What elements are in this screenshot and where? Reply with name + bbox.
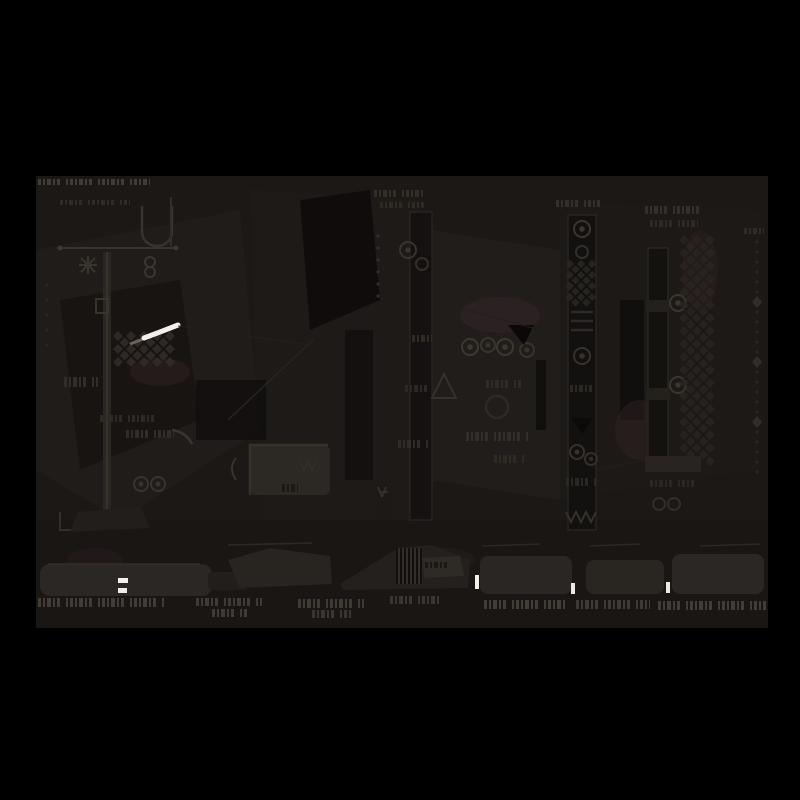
rosette-l1-center (139, 482, 144, 487)
e-glyphs-1-dash (495, 380, 499, 388)
colD-top-cluster-dash (389, 190, 391, 197)
header-textrow-dash (57, 179, 60, 185)
header-textrow-dash (149, 179, 150, 185)
caption-2a-dash (196, 598, 199, 606)
colG-top-cluster2-dash (655, 220, 657, 227)
slab-3b (422, 556, 464, 578)
ppp-row-dash (92, 377, 94, 387)
white-tick-2 (571, 583, 575, 594)
caption-4-dash (499, 600, 501, 609)
rosette-c1-center (467, 344, 473, 350)
slab-6 (672, 554, 764, 594)
equals-mark-top (118, 578, 128, 583)
colG-band1 (646, 300, 670, 312)
caption-2a-dash (243, 598, 245, 606)
top-ticks-dash (88, 200, 90, 205)
colG-glyphs-bottom-dash (682, 480, 685, 487)
glyph-cluster-left-dash (167, 430, 171, 438)
glyph-cluster-left2-dash (147, 415, 149, 422)
caption-3b-dash (331, 610, 334, 618)
right-dotline-dot (755, 340, 758, 343)
colD-glyphs-mid-dash (417, 335, 419, 342)
g-glyph-bottom-dash (282, 484, 285, 492)
caption-3c-dash (422, 596, 425, 604)
caption-1-dash (85, 598, 87, 607)
colD-top-cluster2-dash (395, 202, 397, 208)
caption-3a-dash (349, 599, 352, 608)
colG-body (648, 248, 668, 468)
header-textrow-dash (117, 179, 119, 185)
e-glyphs-1-dash (518, 380, 521, 388)
colD-left-ticks-dot (376, 246, 379, 249)
caption-3c-dash (405, 596, 407, 604)
colG-top-cluster-dash (650, 206, 652, 214)
top-ticks-dash (69, 200, 73, 205)
caption-1-dash (79, 598, 83, 607)
white-tick-1 (475, 575, 479, 589)
left-margin-dots-dot (45, 343, 48, 346)
caption-3c-dash (437, 596, 439, 604)
e-dark-bar (536, 360, 546, 430)
header-textrow-dash (53, 179, 55, 185)
e-glyphs-1-dash (491, 380, 493, 388)
glyph-cluster-left-dash (131, 430, 133, 438)
slab-3b-marks-dash (440, 562, 442, 568)
header-textrow-dash (43, 179, 45, 185)
caption-2a-dash (201, 598, 203, 606)
caption-6-dash (718, 601, 720, 610)
header-textrow-dash (98, 179, 100, 185)
caption-6-dash (763, 601, 766, 610)
colF-glyphs2-dash (575, 478, 579, 486)
caption-1-dash (57, 598, 60, 607)
left-margin-dots-dot (45, 313, 48, 316)
colD-top-cluster2-dash (399, 202, 402, 208)
header-textrow-dash (70, 179, 73, 185)
caption-2b-dash (244, 609, 247, 617)
right-dotline-dot (755, 320, 758, 323)
caption-6-dash (722, 601, 725, 610)
caption-6-dash (737, 601, 739, 610)
glyph-cluster-left-dash (141, 430, 143, 438)
colD-top-cluster2-dash (408, 202, 410, 208)
colD-top-cluster-dash (411, 190, 413, 197)
right-glyph-top-dash (763, 228, 764, 234)
glyph-cluster-left2-dash (141, 415, 145, 422)
glyph-cluster-left-dash (145, 430, 148, 438)
header-textrow-dash (121, 179, 124, 185)
colG-glyphs-bottom-dash (665, 480, 667, 487)
caption-3a-dash (330, 599, 333, 608)
glyph-cluster-left2-dash (100, 415, 103, 422)
right-dotline-dot (755, 240, 758, 243)
colG-glyphs-bottom-dash (678, 480, 680, 487)
caption-4-dash (525, 600, 529, 609)
colG-top-cluster-dash (686, 206, 690, 214)
right-dotline-dot (755, 250, 758, 253)
caption-4-dash (493, 600, 497, 609)
colG-top-cluster2-dash (650, 220, 653, 227)
e-glyphs-2-dash (517, 432, 520, 441)
colD-glyphs-low-dash (398, 440, 401, 448)
top-ticks-dash (65, 200, 67, 205)
colF-glyphs-dash (579, 385, 583, 392)
right-glyph-top-dash (753, 228, 757, 234)
header-textrow-dash (134, 179, 137, 185)
caption-6-dash (673, 601, 675, 610)
top-ticks-dash (60, 200, 63, 205)
caption-3a-dash (339, 599, 343, 608)
caption-6-dash (731, 601, 735, 610)
dim-dot-left (58, 246, 63, 251)
colD-top-cluster2-dash (417, 202, 419, 208)
top-ticks-dash (101, 200, 105, 205)
caption-6-dash (759, 601, 761, 610)
left-margin-dots-dot (45, 298, 48, 301)
e-glyphs-2-dash (485, 432, 488, 441)
colG-top-cluster2-dash (659, 220, 663, 227)
colF-glyphs2-dash (571, 478, 573, 486)
right-dotline-dot (755, 410, 758, 413)
top-ticks-dash (92, 200, 95, 205)
slab-5 (586, 560, 664, 594)
right-dotline-dot (755, 450, 758, 453)
colD-top-cluster-dash (379, 190, 381, 197)
star-glyph (79, 256, 97, 274)
colF-top-cluster-dash (571, 200, 573, 207)
colD-top-cluster2-dash (412, 202, 415, 208)
slab-3b-marks-dash (444, 562, 447, 568)
top-ticks-dash (111, 200, 114, 205)
colD-top-cluster2-dash (389, 202, 393, 208)
g-glyph-bottom-dash (297, 484, 298, 492)
right-dotline-dot (755, 470, 758, 473)
caption-3c-dash (427, 596, 429, 604)
caption-4-dash (531, 600, 533, 609)
caption-6-dash (754, 601, 757, 610)
caption-4-dash (503, 600, 506, 609)
caption-3b-dash (349, 610, 351, 618)
right-dotline-dot (755, 350, 758, 353)
caption-4-dash (563, 600, 565, 609)
colG-band2 (646, 388, 670, 400)
e-glyphs-2-dash (503, 432, 505, 441)
colF-top-cluster-dash (565, 200, 569, 207)
rosette-c3-center (502, 344, 508, 350)
header-textrow-dash (139, 179, 141, 185)
dim-dot-right (174, 246, 179, 251)
colD-top-cluster-dash (374, 190, 377, 197)
right-dotline-dot (755, 260, 758, 263)
e-glyphs-3-dash (522, 455, 524, 463)
caption-1-dash (53, 598, 55, 607)
screenshot-root (0, 0, 800, 800)
caption-4-dash (484, 600, 487, 609)
caption-6-dash (741, 601, 744, 610)
caption-4-dash (535, 600, 538, 609)
colD-top-cluster-dash (393, 190, 396, 197)
colG-slab (645, 456, 701, 472)
top-ticks-dash (107, 200, 109, 205)
caption-3c-dash (399, 596, 403, 604)
colG-top-cluster-dash (692, 206, 694, 214)
header-textrow-dash (111, 179, 115, 185)
caption-3a-dash (303, 599, 305, 608)
colF-rosette-mid-center (579, 353, 585, 359)
caption-3b-dash (327, 610, 329, 618)
header-textrow-dash (107, 179, 109, 185)
left-margin-dots-dot (45, 283, 48, 286)
ppp-row-dash (79, 377, 81, 387)
glyph-cluster-left-dash (158, 430, 161, 438)
colF-rosette3-center (589, 457, 593, 461)
glyph-cluster-left2-dash (128, 415, 130, 422)
header-textrow-dash (85, 179, 87, 185)
e-glyphs-3-dash (499, 455, 501, 463)
top-ticks-dash (79, 200, 82, 205)
colD-foot (377, 480, 393, 518)
colD-left-ticks-dot (376, 282, 379, 285)
colD-ring1-center (405, 247, 411, 253)
colD-glyphs-mid2-dash (405, 385, 408, 392)
e-glyphs-2-dash (481, 432, 483, 441)
colF-top-cluster-dash (575, 200, 578, 207)
colD-top-cluster-dash (415, 190, 419, 197)
e-glyphs-1-dash (514, 380, 516, 388)
colD-glyphs-mid-dash (412, 335, 415, 342)
caption-4-dash (548, 600, 551, 609)
caption-3b-dash (312, 610, 315, 618)
glyph-cluster-left-dash (135, 430, 139, 438)
right-dotline-dot (755, 290, 758, 293)
glyph-cluster-left-dash (154, 430, 156, 438)
colF-glyphs2-dash (566, 478, 569, 486)
rosette-c4-center (525, 348, 530, 353)
e-glyphs-2-dash (494, 432, 496, 441)
colD-top-cluster-dash (383, 190, 387, 197)
caption-5-dash (627, 600, 630, 609)
colF-glyphs2-dash (581, 478, 583, 486)
caption-1-dash (139, 598, 141, 607)
caption-2a-dash (256, 598, 258, 606)
glyph-cluster-left-dash (163, 430, 165, 438)
caption-1-dash (38, 598, 41, 607)
caption-4-dash (544, 600, 546, 609)
caption-1-dash (130, 598, 132, 607)
caption-3a-dash (313, 599, 315, 608)
colD-glyphs-mid2-dash (424, 385, 427, 392)
caption-1-dash (102, 598, 105, 607)
caption-1-dash (70, 598, 73, 607)
glyph-cluster-left2-dash (137, 415, 139, 422)
caption-6-dash (695, 601, 697, 610)
e-glyphs-2-dash (498, 432, 501, 441)
caption-3c-dash (431, 596, 435, 604)
colG-top-cluster-dash (654, 206, 658, 214)
colD-top-cluster2-dash (385, 202, 387, 208)
caption-1-dash (143, 598, 147, 607)
caption-1-dash (47, 598, 51, 607)
caption-3c-dash (418, 596, 420, 604)
caption-6-dash (709, 601, 712, 610)
colG-top-cluster-dash (664, 206, 667, 214)
header-textrow-dash (47, 179, 51, 185)
colG-glyphs-bottom-dash (691, 480, 694, 487)
caption-3c-dash (409, 596, 412, 604)
caption-3a-dash (326, 599, 328, 608)
top-ticks-dash (120, 200, 122, 205)
slab-3b-marks-dash (434, 562, 438, 568)
colG-top-cluster2-dash (697, 220, 698, 227)
colG-glyphs-bottom-dash (650, 480, 653, 487)
e-glyphs-3-dash (494, 455, 497, 463)
caption-5-dash (576, 600, 579, 609)
slab-3b-marks-dash (430, 562, 432, 568)
colD-glyphs-low-dash (417, 440, 420, 448)
caption-2b-dash (231, 609, 234, 617)
caption-2a-dash (224, 598, 226, 606)
caption-5-dash (636, 600, 638, 609)
g-glyph-bottom-dash (291, 484, 295, 492)
colF-top-cluster-dash (556, 200, 559, 207)
top-ticks-dash (129, 200, 130, 205)
glyph-cluster-left2-dash (115, 415, 117, 422)
g-panel (250, 445, 330, 495)
colG-top-cluster2-dash (669, 220, 672, 227)
colD-top-cluster-dash (402, 190, 404, 197)
caption-5-dash (591, 600, 593, 609)
header-textrow-dash (75, 179, 77, 185)
caption-6-dash (705, 601, 707, 610)
caption-1-dash (162, 598, 164, 607)
slab-3b-marks-dash (425, 562, 428, 568)
left-margin-dots-dot (45, 328, 48, 331)
caption-3a-dash (362, 599, 364, 608)
caption-1-dash (149, 598, 151, 607)
caption-3a-dash (335, 599, 337, 608)
caption-1-dash (107, 598, 109, 607)
colG-glyphs-bottom-dash (655, 480, 657, 487)
colD-glyphs-low-dash (413, 440, 415, 448)
caption-6-dash (663, 601, 665, 610)
colF-rosette2-center (575, 450, 580, 455)
caption-2a-dash (215, 598, 218, 606)
glyph-cluster-left2-dash (109, 415, 113, 422)
caption-5-dash (608, 600, 611, 609)
glyph-cluster-left2-dash (151, 415, 154, 422)
caption-1-dash (75, 598, 77, 607)
header-textrow-dash (66, 179, 68, 185)
header-textrow-dash (79, 179, 83, 185)
colD-glyphs-low-dash (403, 440, 405, 448)
right-glyph-top-dash (744, 228, 747, 234)
colD-left-ticks-dot (376, 294, 379, 297)
right-dotline-dot (755, 460, 758, 463)
colD-top-cluster-dash (406, 190, 409, 197)
ppp-row-dash (73, 377, 77, 387)
caption-2a-dash (247, 598, 250, 606)
caption-2a-dash (233, 598, 235, 606)
caption-3b-dash (317, 610, 319, 618)
ppp-row-dash (96, 377, 98, 387)
e-glyphs-2-dash (475, 432, 479, 441)
colD-glyphs-low-dash (407, 440, 411, 448)
caption-2b-dash (221, 609, 225, 617)
caption-1-dash (153, 598, 156, 607)
caption-5-dash (613, 600, 615, 609)
e-glyphs-3-dash (513, 455, 516, 463)
caption-3b-dash (340, 610, 342, 618)
colD-glyphs-mid2-dash (410, 385, 412, 392)
caption-3b-dash (344, 610, 347, 618)
colG-glyphs-bottom-dash (687, 480, 689, 487)
colF-glyphs-dash (585, 385, 587, 392)
colG-glyphs-bottom-dash (669, 480, 672, 487)
slab-4 (480, 556, 572, 594)
colD-glyphs-mid2-dash (414, 385, 418, 392)
caption-5-dash (640, 600, 643, 609)
ppp-row-dash (64, 377, 67, 387)
top-ticks-dash (97, 200, 99, 205)
e-glyphs-1-dash (486, 380, 489, 388)
colG-top-cluster-dash (696, 206, 699, 214)
photo-canvas (0, 0, 800, 800)
caption-1-dash (66, 598, 68, 607)
colF-glyphs2-dash (585, 478, 588, 486)
caption-2a-dash (205, 598, 209, 606)
caption-2a-dash (260, 598, 262, 606)
caption-5-dash (585, 600, 589, 609)
caption-1-dash (134, 598, 137, 607)
colF-glyphs-dash (589, 385, 592, 392)
colF-circle-center (579, 226, 585, 232)
top-ticks-dash (124, 200, 127, 205)
caption-6-dash (658, 601, 661, 610)
caption-3a-dash (358, 599, 360, 608)
caption-4-dash (557, 600, 561, 609)
e-glyphs-3-dash (509, 455, 511, 463)
colD-glyphs-mid2-dash (420, 385, 422, 392)
e-glyphs-2-dash (513, 432, 515, 441)
header-textrow-dash (143, 179, 147, 185)
g-glyph-bottom-dash (287, 484, 289, 492)
header-textrow-dash (102, 179, 105, 185)
colD-glyphs-low-dash (426, 440, 428, 448)
caption-2a-dash (228, 598, 231, 606)
caption-5-dash (617, 600, 621, 609)
top-ticks-dash (75, 200, 77, 205)
caption-5-dash (645, 600, 647, 609)
e-glyphs-2-dash (466, 432, 469, 441)
right-dotline-dot (755, 390, 758, 393)
colG-glyphs-bottom-dash (659, 480, 663, 487)
caption-5-dash (595, 600, 598, 609)
caption-6-dash (750, 601, 752, 610)
colF-top-cluster-dash (588, 200, 591, 207)
colG-top-cluster2-dash (678, 220, 680, 227)
e-glyphs-2-dash (507, 432, 511, 441)
rosette-c2-center (486, 343, 491, 348)
colG-top-cluster-dash (682, 206, 684, 214)
caption-3b-dash (321, 610, 325, 618)
header-textrow-dash (38, 179, 41, 185)
e-glyphs-2-dash (526, 432, 528, 441)
caption-4-dash (512, 600, 514, 609)
colG-top-cluster2-dash (682, 220, 685, 227)
caption-6-dash (677, 601, 680, 610)
caption-1-dash (111, 598, 115, 607)
void-2 (196, 380, 266, 440)
